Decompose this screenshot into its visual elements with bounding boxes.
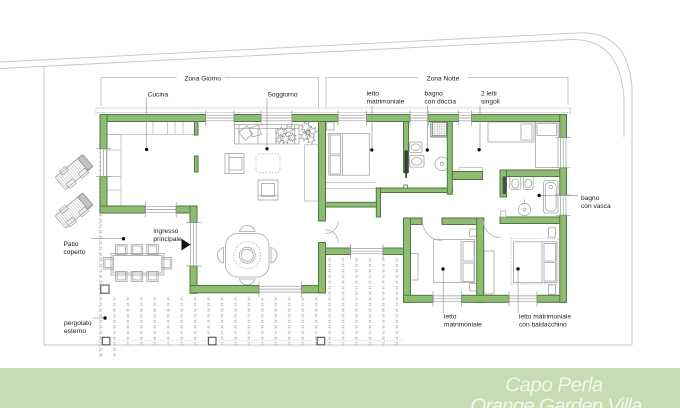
svg-text:Zona Notte: Zona Notte — [427, 75, 460, 82]
svg-text:matrimoniale: matrimoniale — [367, 99, 405, 106]
svg-text:Patio: Patio — [64, 241, 79, 248]
svg-text:esterno: esterno — [64, 328, 86, 335]
svg-text:letto: letto — [444, 314, 457, 321]
svg-text:coperto: coperto — [64, 249, 86, 256]
svg-text:bagno: bagno — [581, 195, 600, 202]
svg-text:Zona Giorno: Zona Giorno — [184, 75, 221, 82]
svg-text:ingresso: ingresso — [153, 228, 178, 235]
svg-text:2 letti: 2 letti — [481, 91, 497, 98]
svg-text:principale: principale — [153, 236, 182, 243]
svg-text:Orange Garden Villa: Orange Garden Villa — [470, 395, 642, 408]
svg-text:bagno: bagno — [425, 91, 444, 98]
svg-text:con vasca: con vasca — [581, 203, 611, 210]
svg-text:con doccia: con doccia — [425, 99, 457, 106]
svg-text:Soggiorno: Soggiorno — [268, 92, 298, 99]
svg-text:pergolato: pergolato — [64, 320, 92, 327]
svg-text:Capo Perla: Capo Perla — [505, 374, 603, 397]
svg-text:letto matrimoniale: letto matrimoniale — [519, 314, 571, 321]
svg-text:matrimoniale: matrimoniale — [444, 322, 482, 329]
svg-text:singoli: singoli — [481, 99, 500, 106]
svg-text:letto: letto — [367, 91, 380, 98]
svg-text:Cucina: Cucina — [148, 92, 169, 99]
svg-text:con baldacchino: con baldacchino — [519, 322, 567, 329]
